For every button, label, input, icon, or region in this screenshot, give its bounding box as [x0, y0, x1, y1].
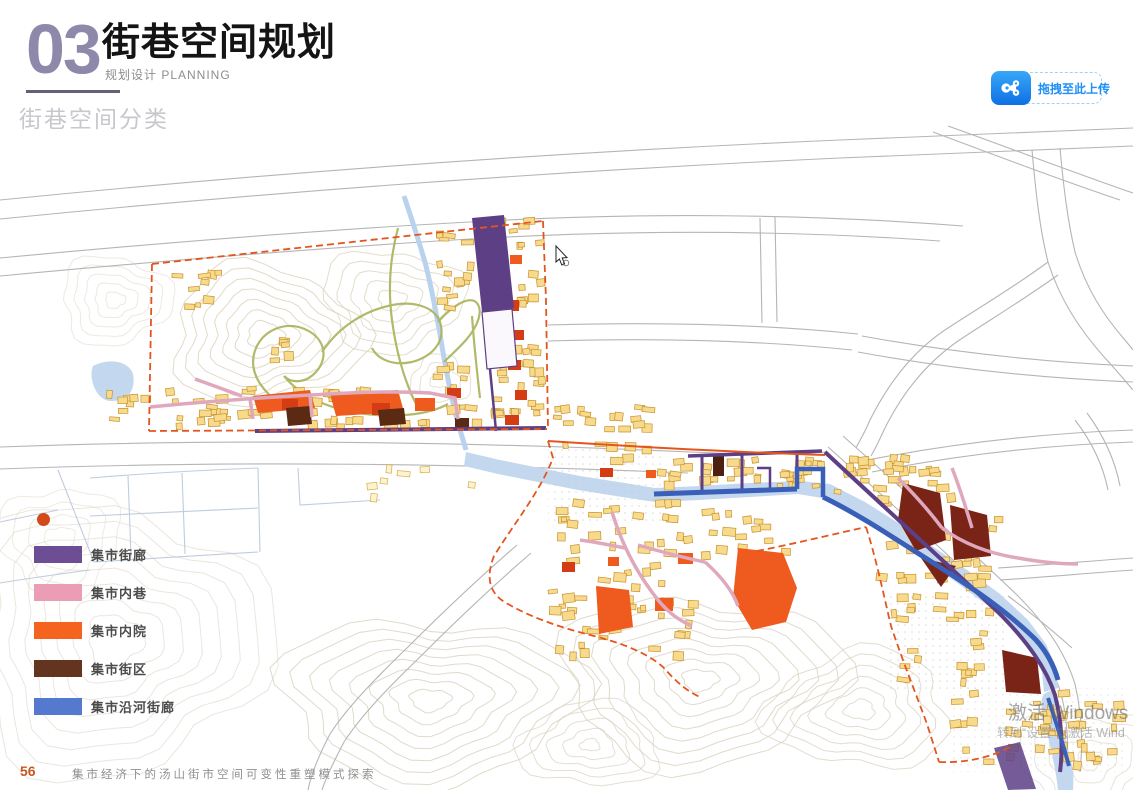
planning-map [0, 0, 1133, 790]
legend-label: 集市沿河街廊 [91, 697, 175, 716]
legend-swatch [34, 660, 82, 677]
page-number: 56 [20, 763, 36, 779]
legend-label: 集市内院 [91, 621, 147, 640]
legend-item: 集市内院 [34, 621, 147, 640]
field-boundary-layer [0, 468, 380, 583]
drag-upload-button[interactable]: 拖拽至此上传 [992, 72, 1102, 104]
legend-label: 集市街廊 [91, 545, 147, 564]
legend-swatch [34, 698, 82, 715]
upload-label: 拖拽至此上传 [1038, 80, 1110, 97]
legend-swatch [34, 584, 82, 601]
mouse-cursor [556, 246, 569, 266]
legend-item: 集市沿河街廊 [34, 697, 175, 716]
windows-activation-watermark-line2: 转到“设置”以激活 Wind [997, 722, 1125, 741]
legend-marker-dot [37, 513, 50, 526]
legend-label: 集市街区 [91, 659, 147, 678]
legend-item: 集市街廊 [34, 545, 147, 564]
legend-item: 集市内巷 [34, 583, 147, 602]
legend-label: 集市内巷 [91, 583, 147, 602]
legend-swatch [34, 546, 82, 563]
netdisk-cloud-icon [991, 71, 1031, 105]
legend-swatch [34, 622, 82, 639]
page: { "header": { "chapter_number": "03", "t… [0, 0, 1133, 790]
legend-item: 集市街区 [34, 659, 147, 678]
footer-caption: 集市经济下的汤山街市空间可变性重塑模式探索 [72, 766, 377, 782]
windows-activation-watermark-line1: 激活 Windows [1008, 698, 1128, 725]
